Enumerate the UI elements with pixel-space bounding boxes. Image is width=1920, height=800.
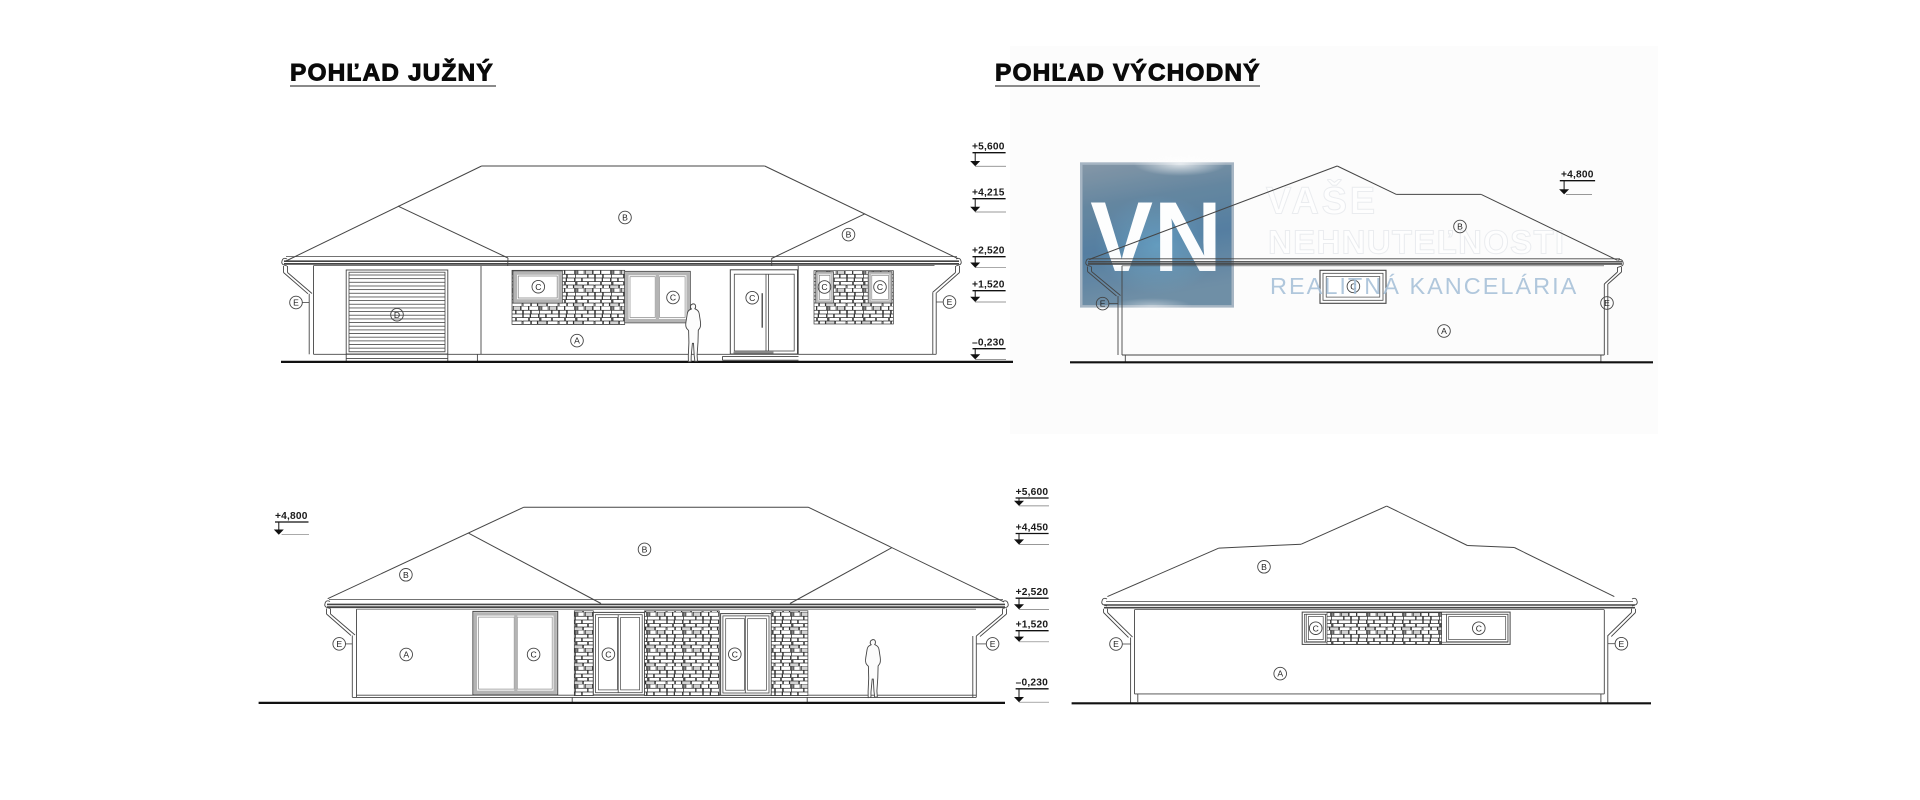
- svg-text:C: C: [732, 649, 738, 659]
- svg-text:E: E: [1619, 639, 1625, 649]
- svg-text:E: E: [1100, 299, 1106, 309]
- svg-text:C: C: [535, 282, 541, 292]
- svg-text:+2,520: +2,520: [972, 246, 1005, 257]
- svg-text:REALITNÁ KANCELÁRIA: REALITNÁ KANCELÁRIA: [1270, 273, 1578, 299]
- svg-text:+4,800: +4,800: [1561, 170, 1594, 181]
- svg-text:B: B: [1457, 222, 1463, 232]
- svg-text:A: A: [1277, 669, 1283, 679]
- svg-text:+2,520: +2,520: [1016, 587, 1049, 598]
- svg-text:+5,600: +5,600: [1016, 487, 1049, 498]
- svg-text:+4,215: +4,215: [972, 188, 1005, 199]
- svg-text:C: C: [670, 293, 676, 303]
- svg-text:C: C: [1313, 623, 1319, 633]
- svg-text:E: E: [1113, 639, 1119, 649]
- svg-text:E: E: [947, 297, 953, 307]
- svg-text:A: A: [574, 336, 580, 346]
- svg-text:+4,450: +4,450: [1016, 522, 1049, 533]
- svg-text:NEHNUTEĽNOSTI: NEHNUTEĽNOSTI: [1268, 224, 1565, 261]
- svg-text:POHĽAD JUŽNÝ: POHĽAD JUŽNÝ: [290, 59, 494, 87]
- svg-text:+4,800: +4,800: [275, 511, 308, 522]
- svg-text:POHĽAD VÝCHODNÝ: POHĽAD VÝCHODNÝ: [995, 59, 1261, 87]
- svg-text:B: B: [642, 545, 648, 555]
- svg-text:–0,230: –0,230: [1016, 678, 1048, 689]
- svg-text:C: C: [749, 293, 755, 303]
- svg-text:C: C: [877, 282, 883, 292]
- svg-text:–0,230: –0,230: [972, 338, 1004, 349]
- svg-text:E: E: [1604, 298, 1610, 308]
- svg-text:C: C: [605, 649, 611, 659]
- svg-text:A: A: [1441, 326, 1447, 336]
- svg-text:E: E: [990, 639, 996, 649]
- svg-text:+1,520: +1,520: [1016, 620, 1049, 631]
- svg-text:B: B: [846, 230, 852, 240]
- svg-text:E: E: [336, 639, 342, 649]
- svg-text:C: C: [821, 282, 827, 292]
- svg-text:E: E: [293, 298, 299, 308]
- svg-text:+5,600: +5,600: [972, 142, 1005, 153]
- svg-text:B: B: [403, 570, 409, 580]
- svg-text:A: A: [403, 650, 409, 660]
- svg-text:VN: VN: [1090, 183, 1223, 293]
- svg-text:D: D: [394, 310, 400, 320]
- svg-text:C: C: [530, 650, 536, 660]
- svg-text:C: C: [1476, 623, 1482, 633]
- svg-text:VAŠE: VAŠE: [1266, 178, 1378, 223]
- svg-text:+1,520: +1,520: [972, 280, 1005, 291]
- svg-text:B: B: [1261, 562, 1267, 572]
- svg-text:B: B: [622, 213, 628, 223]
